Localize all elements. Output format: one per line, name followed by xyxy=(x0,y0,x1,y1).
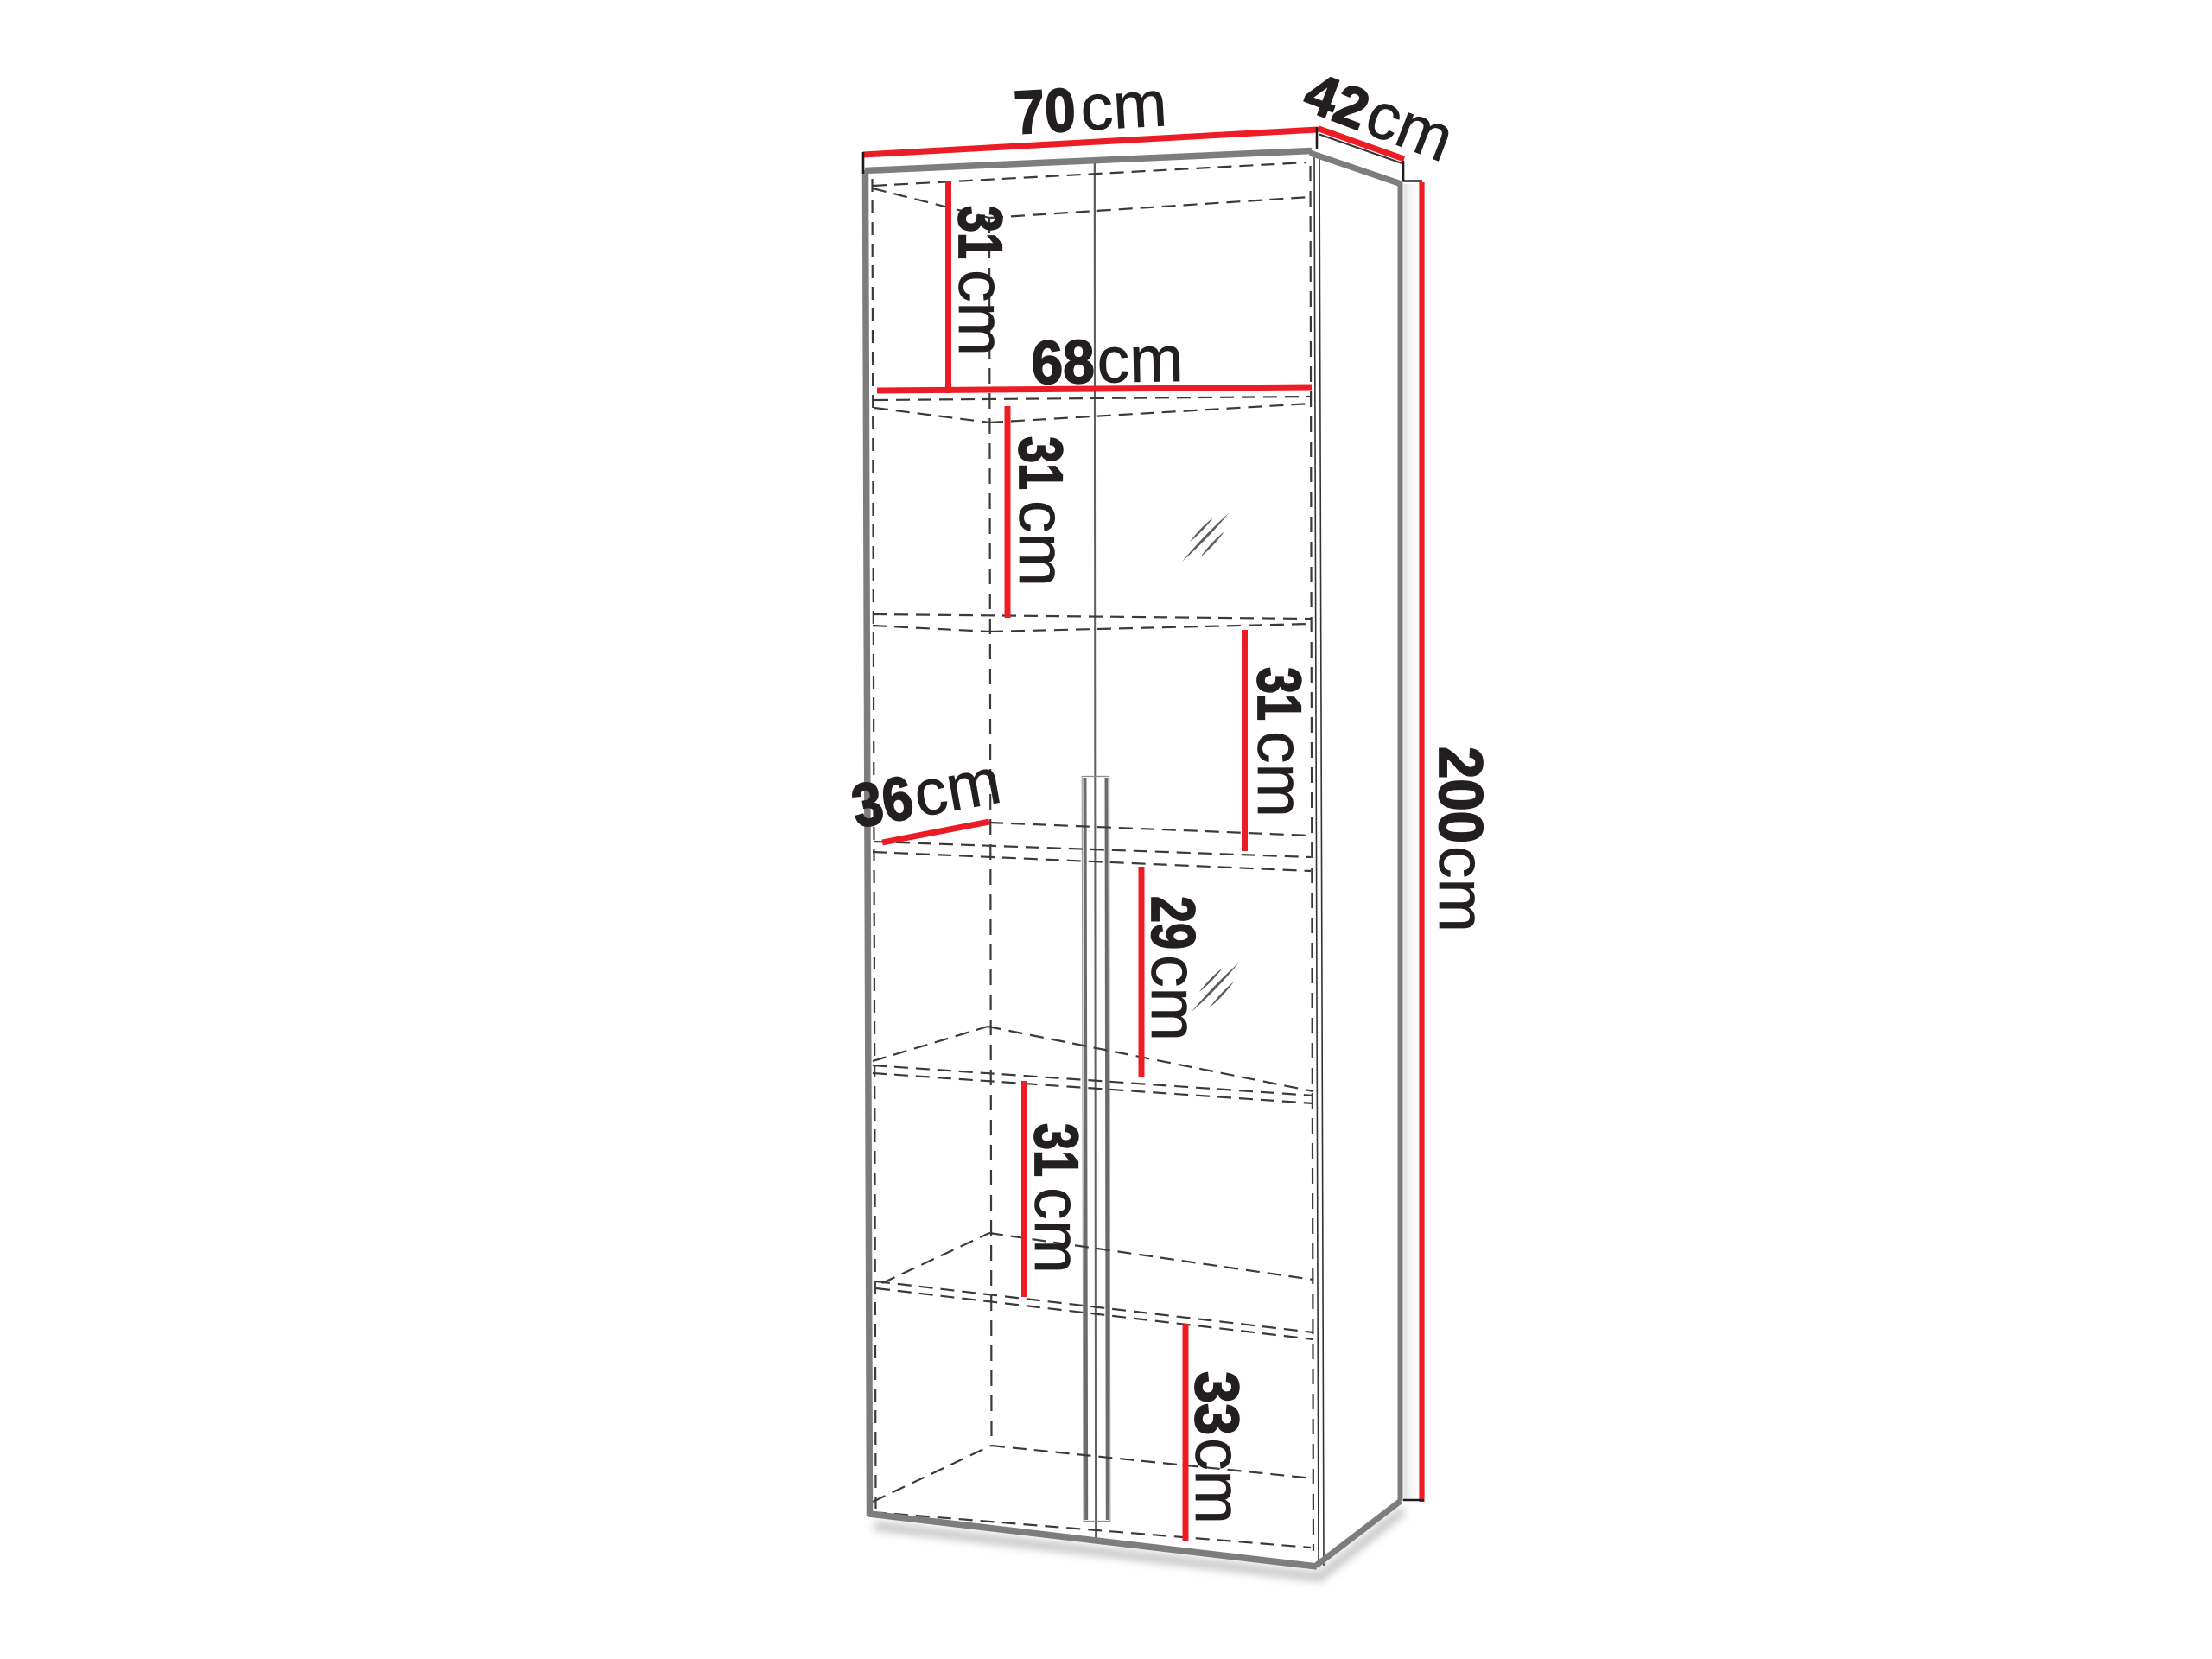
svg-text:68cm: 68cm xyxy=(1031,322,1184,397)
svg-text:31cm: 31cm xyxy=(1006,436,1078,587)
svg-text:70cm: 70cm xyxy=(1012,67,1168,148)
svg-text:33cm: 33cm xyxy=(1182,1371,1255,1524)
svg-text:31cm: 31cm xyxy=(945,206,1018,356)
svg-text:200cm: 200cm xyxy=(1426,747,1498,932)
svg-text:29cm: 29cm xyxy=(1138,896,1211,1041)
svg-text:31cm: 31cm xyxy=(1244,667,1317,817)
svg-text:31cm: 31cm xyxy=(1021,1123,1094,1274)
